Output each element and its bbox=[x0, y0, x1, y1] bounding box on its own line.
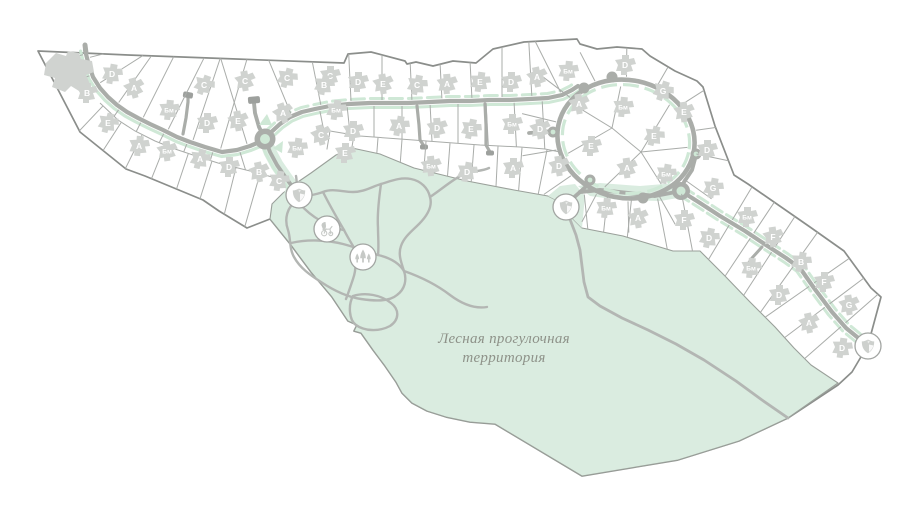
svg-text:A: A bbox=[624, 163, 630, 173]
svg-text:Бм: Бм bbox=[162, 148, 172, 155]
svg-text:Бм: Бм bbox=[292, 145, 302, 152]
svg-text:E: E bbox=[588, 141, 594, 151]
svg-text:A: A bbox=[635, 213, 641, 223]
svg-text:D: D bbox=[622, 60, 628, 70]
svg-text:C: C bbox=[242, 76, 248, 86]
svg-text:B: B bbox=[256, 167, 262, 177]
svg-text:E: E bbox=[477, 77, 483, 87]
svg-text:D: D bbox=[109, 69, 115, 79]
svg-text:E: E bbox=[342, 148, 348, 158]
svg-text:B: B bbox=[798, 257, 804, 267]
svg-text:территория: территория bbox=[462, 350, 545, 366]
svg-text:D: D bbox=[537, 124, 543, 134]
svg-text:F: F bbox=[681, 215, 686, 225]
svg-text:D: D bbox=[434, 123, 440, 133]
svg-text:G: G bbox=[846, 300, 853, 310]
svg-text:A: A bbox=[534, 72, 540, 82]
svg-text:D: D bbox=[556, 161, 562, 171]
svg-text:A: A bbox=[136, 141, 142, 151]
svg-text:C: C bbox=[284, 73, 290, 83]
svg-text:F: F bbox=[821, 277, 826, 287]
svg-text:A: A bbox=[510, 163, 516, 173]
svg-text:B: B bbox=[321, 80, 327, 90]
svg-text:A: A bbox=[280, 108, 286, 118]
svg-text:D: D bbox=[355, 77, 361, 87]
svg-text:C: C bbox=[414, 80, 420, 90]
svg-text:Лесная прогулочная: Лесная прогулочная bbox=[437, 331, 570, 347]
svg-text:D: D bbox=[839, 343, 845, 353]
svg-text:D: D bbox=[508, 77, 514, 87]
svg-text:Бм: Бм bbox=[661, 171, 671, 178]
svg-text:A: A bbox=[806, 318, 812, 328]
svg-text:C: C bbox=[276, 176, 282, 186]
svg-text:D: D bbox=[204, 118, 210, 128]
svg-text:E: E bbox=[105, 118, 111, 128]
svg-text:E: E bbox=[235, 116, 241, 126]
svg-text:Бм: Бм bbox=[507, 121, 517, 128]
svg-text:Бм: Бм bbox=[563, 68, 573, 75]
svg-text:A: A bbox=[444, 79, 450, 89]
svg-text:E: E bbox=[468, 124, 474, 134]
svg-text:E: E bbox=[651, 131, 657, 141]
svg-text:C: C bbox=[201, 80, 207, 90]
svg-text:Бм: Бм bbox=[742, 214, 752, 221]
svg-text:A: A bbox=[576, 99, 582, 109]
svg-text:Бм: Бм bbox=[426, 163, 436, 170]
svg-text:A: A bbox=[131, 83, 137, 93]
svg-text:Бм: Бм bbox=[601, 205, 611, 212]
svg-text:C: C bbox=[318, 130, 324, 140]
svg-text:G: G bbox=[710, 183, 717, 193]
svg-text:D: D bbox=[706, 233, 712, 243]
svg-text:D: D bbox=[464, 167, 470, 177]
svg-text:E: E bbox=[681, 107, 687, 117]
svg-text:D: D bbox=[350, 126, 356, 136]
svg-text:A: A bbox=[197, 154, 203, 164]
svg-text:D: D bbox=[226, 162, 232, 172]
svg-text:G: G bbox=[660, 86, 667, 96]
svg-text:Бм: Бм bbox=[164, 107, 174, 114]
svg-text:F: F bbox=[770, 232, 775, 242]
svg-text:D: D bbox=[776, 290, 782, 300]
svg-text:Бм: Бм bbox=[746, 265, 756, 272]
svg-text:B: B bbox=[84, 88, 90, 98]
svg-text:Бм: Бм bbox=[331, 107, 341, 114]
svg-text:A: A bbox=[396, 121, 402, 131]
svg-text:D: D bbox=[704, 145, 710, 155]
svg-text:Бм: Бм bbox=[618, 104, 628, 111]
svg-text:E: E bbox=[380, 79, 386, 89]
